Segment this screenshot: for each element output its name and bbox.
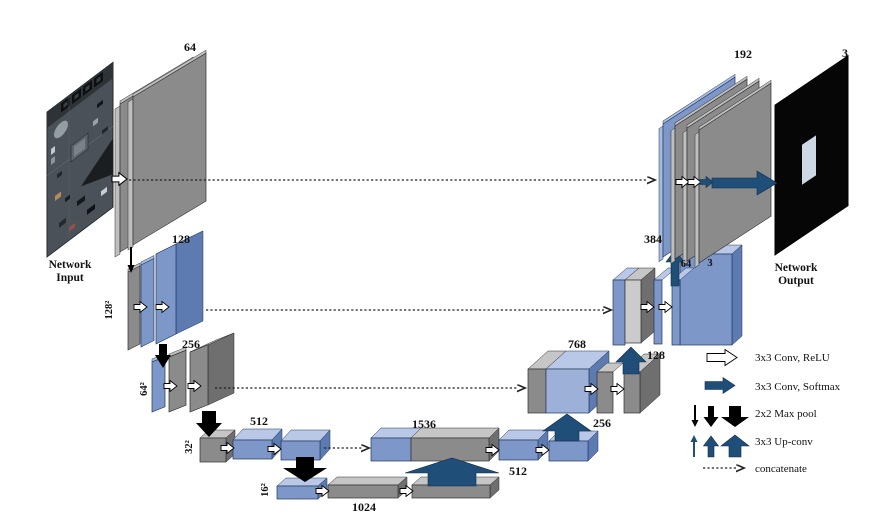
- label-size-16: 16²: [260, 483, 271, 497]
- label-3-dec: 3: [707, 258, 712, 269]
- concat-box: [371, 438, 411, 461]
- label-128-dec: 128: [647, 348, 665, 362]
- legend-up-conv-mid-icon: [704, 436, 719, 457]
- conv-box: [277, 486, 318, 499]
- legend-max-pool-mid-icon: [704, 406, 719, 427]
- legend-conv-relu-arrow-icon: [707, 350, 737, 366]
- conv-plate-side: [208, 333, 234, 405]
- legend-conv-relu-label: 3x3 Conv, ReLU: [755, 352, 830, 364]
- unet-diagram: 64 128 256 512 1024 1536 512 256 768 128…: [0, 0, 888, 529]
- conv-box: [233, 440, 272, 459]
- concat-box: [546, 369, 589, 413]
- encoder-level2-plates: [128, 231, 203, 350]
- label-256: 256: [182, 337, 200, 351]
- legend: 3x3 Conv, ReLU 3x3 Conv, Softmax 2x2 Max…: [691, 350, 841, 476]
- output-title-line2: Output: [778, 275, 814, 287]
- label-size-64: 64²: [139, 382, 150, 396]
- upconv-plate: [528, 369, 546, 413]
- legend-concatenate-label: concatenate: [755, 463, 807, 475]
- label-1024: 1024: [352, 500, 376, 514]
- conv-box: [549, 441, 588, 461]
- conv-plate: [141, 255, 154, 347]
- conv-plate: [672, 280, 680, 345]
- network-output-image: [775, 56, 848, 255]
- label-size-128: 128²: [104, 301, 115, 320]
- conv-plate: [654, 280, 662, 344]
- label-512: 512: [250, 414, 268, 428]
- conv-plate: [169, 347, 186, 412]
- conv-box: [328, 485, 398, 498]
- bottleneck-boxes: [371, 428, 499, 461]
- decoder-level4-boxes: [499, 430, 598, 461]
- decoder-level1-plates: [659, 74, 771, 267]
- concat-box: [411, 438, 489, 461]
- input-title-line2: Input: [56, 272, 84, 284]
- concat-plate: [625, 280, 641, 343]
- upconv-plate: [613, 280, 625, 345]
- legend-conv-softmax-arrow-icon: [705, 378, 735, 394]
- legend-conv-softmax-label: 3x3 Conv, Softmax: [755, 381, 841, 393]
- label-128: 128: [172, 232, 190, 246]
- legend-max-pool-label: 2x2 Max pool: [755, 408, 817, 420]
- label-1536: 1536: [412, 417, 436, 431]
- input-title-line1: Network: [49, 259, 92, 271]
- legend-max-pool-large-icon: [721, 406, 749, 427]
- conv-box: [412, 485, 490, 498]
- conv-plate: [624, 372, 640, 413]
- legend-up-conv-label: 3x3 Up-conv: [755, 436, 813, 448]
- diagram-canvas: 64 128 256 512 1024 1536 512 256 768 128…: [0, 0, 888, 529]
- label-64: 64: [184, 40, 196, 54]
- legend-up-conv-large-icon: [721, 435, 749, 457]
- label-64-dec: 64: [681, 259, 692, 270]
- network-input-image: [47, 62, 113, 257]
- label-768: 768: [568, 337, 586, 351]
- conv-plate: [597, 372, 613, 413]
- label-192: 192: [734, 47, 752, 61]
- label-384: 384: [644, 232, 662, 246]
- label-3-out: 3: [842, 46, 848, 60]
- conv-plate-side: [176, 231, 203, 334]
- label-size-32: 32²: [184, 440, 195, 454]
- conv-plate: [156, 244, 176, 344]
- output-title-line1: Network: [775, 262, 818, 274]
- label-256-dec: 256: [593, 416, 611, 430]
- conv-plate: [128, 50, 206, 250]
- conv-box: [499, 440, 538, 460]
- label-512-dec: 512: [509, 464, 527, 478]
- encoder-level1-plates: [115, 50, 206, 257]
- conv-plate: [190, 345, 208, 412]
